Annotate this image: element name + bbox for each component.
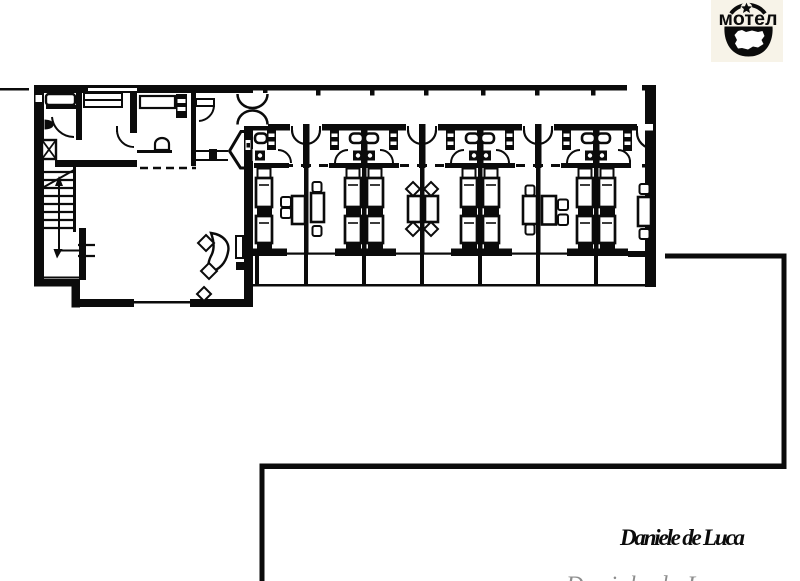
svg-text:Daniele de Luca: Daniele de Luca (565, 573, 738, 581)
svg-text:Daniele de Luca: Daniele de Luca (619, 525, 745, 550)
